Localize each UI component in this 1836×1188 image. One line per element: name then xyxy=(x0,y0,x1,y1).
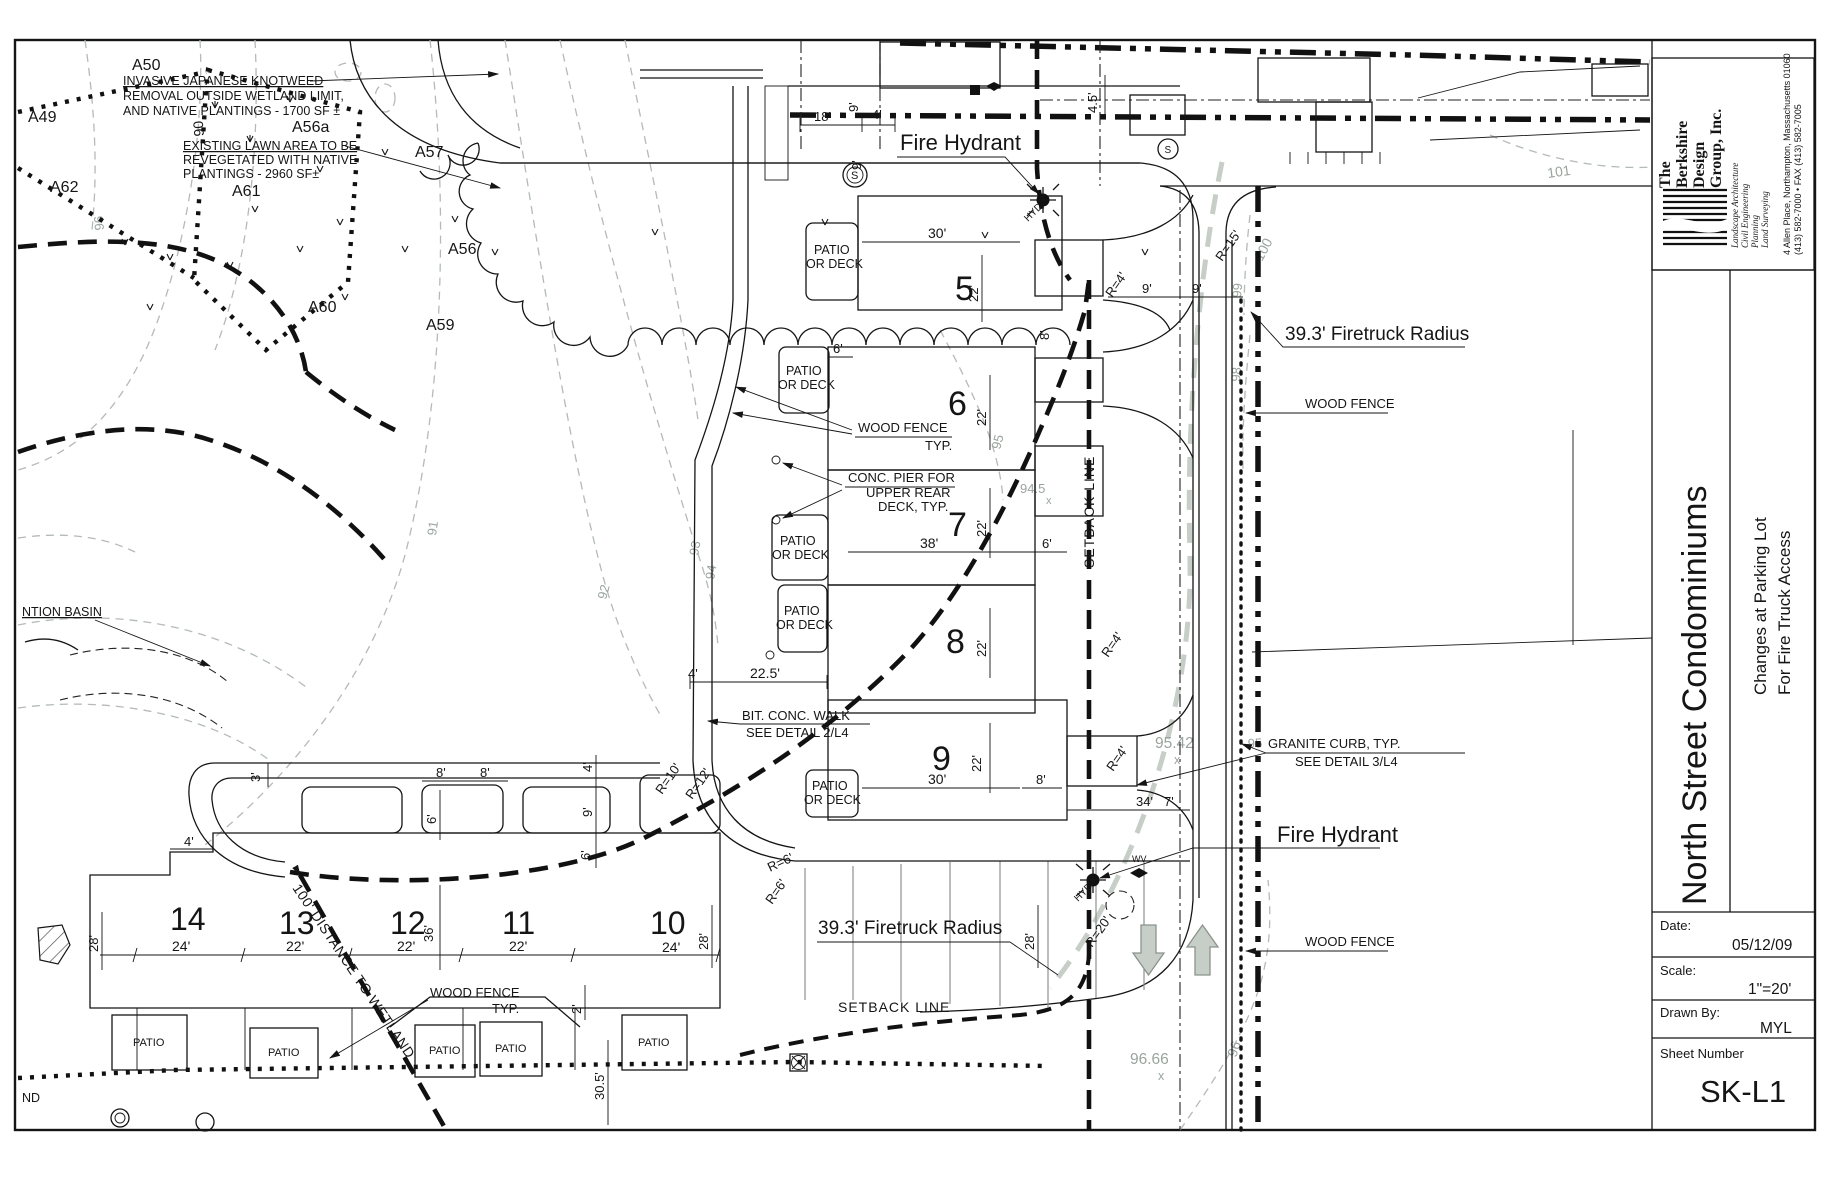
patio-deck-6b: OR DECK xyxy=(778,378,836,392)
dim-3: 3' xyxy=(248,772,263,782)
pt-a49: A49 xyxy=(28,109,57,126)
unit-numbers: 5 6 7 8 9 10 11 12 13 14 xyxy=(170,270,974,941)
dim-45: 4.5' xyxy=(1085,92,1100,113)
firm-addr-2: (413) 582-7000 • FAX (413) 582-7005 xyxy=(1793,104,1803,255)
contour-101: 101 xyxy=(1546,162,1572,181)
dim-4c: 4' xyxy=(184,834,194,849)
note-knotweed-3: AND NATIVE PLANTINGS - 1700 SF ± xyxy=(123,104,340,118)
title-block: The Berkshire Design Group, Inc. Landsca… xyxy=(1652,53,1814,1109)
dim-22d: 22' xyxy=(974,640,989,657)
tree-lines xyxy=(420,143,1070,356)
dim-38: 38' xyxy=(920,535,938,551)
label-firetruck-radius-bottom: 39.3' Firetruck Radius xyxy=(818,918,1002,939)
label-wood-fence-right-bottom: WOOD FENCE xyxy=(1305,934,1395,949)
dim-225: 22.5' xyxy=(750,665,780,681)
manhole2-s-label: S xyxy=(1165,145,1172,156)
unit-7: 7 xyxy=(948,506,967,544)
dim-7: 7' xyxy=(1164,794,1174,809)
contour-91: 91 xyxy=(424,520,441,536)
note-lawn-1: EXISTING LAWN AREA TO BE xyxy=(183,139,357,153)
dim-18: 18' xyxy=(814,109,831,124)
patio-deck-8a: PATIO xyxy=(784,604,820,618)
project-title: North Street Condominiums xyxy=(1676,485,1714,905)
dim-6d: 6' xyxy=(578,850,593,860)
drawn-by-label: Drawn By: xyxy=(1660,1005,1720,1020)
label-bit-walk-2: SEE DETAIL 2/L4 xyxy=(746,725,849,740)
patio-labels: PATIO OR DECK PATIO OR DECK PATIO OR DEC… xyxy=(133,243,864,1059)
label-firetruck-radius-top: 39.3' Firetruck Radius xyxy=(1285,324,1469,345)
spot-elev-9542: 95.42 xyxy=(1155,735,1194,752)
label-granite-2: SEE DETAIL 3/L4 xyxy=(1295,754,1398,769)
sheet-number-value: SK-L1 xyxy=(1700,1074,1786,1109)
note-lawn-3: PLANTINGS - 2960 SF± xyxy=(183,167,319,181)
firm-name-2: Berkshire xyxy=(1674,121,1691,188)
contour-92: 92 xyxy=(594,583,612,601)
label-setback-bottom: SETBACK LINE xyxy=(838,999,950,1015)
dim-28c: 28' xyxy=(1022,933,1037,950)
dim-9d: 9' xyxy=(1192,281,1202,296)
dimension-text: 18' 4' 9' 9' 4.5' 30' 22' 6' 22' 38' 22'… xyxy=(86,92,1244,1100)
firm-svc-3: Planning xyxy=(1750,215,1760,249)
pt-a59: A59 xyxy=(426,317,455,334)
catch-basin-icon xyxy=(790,1054,807,1071)
firm-svc-4: Land Surveying xyxy=(1760,191,1770,249)
patio-deck-6a: PATIO xyxy=(786,364,822,378)
dim-6a: 6' xyxy=(833,341,843,356)
scale-label: Scale: xyxy=(1660,963,1696,978)
scale-value: 1"=20' xyxy=(1748,981,1791,998)
dim-6c: 6' xyxy=(424,814,439,824)
dim-r4c: R=4' xyxy=(1103,743,1131,773)
dim-24b: 24' xyxy=(662,939,680,955)
label-wood-fence-right-top: WOOD FENCE xyxy=(1305,396,1395,411)
dim-30a: 30' xyxy=(928,225,946,241)
pt-a60: A60 xyxy=(308,299,337,316)
label-fire-hydrant-bottom: Fire Hydrant xyxy=(1277,822,1398,847)
label-conc-pier-3: DECK, TYP. xyxy=(878,499,948,514)
note-knotweed-1: INVASIVE JAPANESE KNOTWEED xyxy=(123,74,323,88)
patio-deck-5b: OR DECK xyxy=(806,257,864,271)
contour-96: 96 xyxy=(91,215,107,231)
patio-14: PATIO xyxy=(133,1037,165,1049)
dim-9a: 9' xyxy=(846,102,861,112)
pt-a61: A61 xyxy=(232,183,261,200)
pt-a56a: A56a xyxy=(292,119,329,136)
sheet-title-1: Changes at Parking Lot xyxy=(1751,517,1770,695)
dim-8a: 8' xyxy=(1036,772,1046,787)
dim-r6a: R=6' xyxy=(765,850,796,875)
dim-22e: 22' xyxy=(969,755,984,772)
pt-a62: A62 xyxy=(50,179,79,196)
firm-svc-2: Civil Engineering xyxy=(1740,183,1750,248)
plant-symbols xyxy=(122,96,1148,310)
dim-8c: 8' xyxy=(436,765,446,780)
unit-9: 9 xyxy=(932,740,951,778)
firm-name-4: Group, Inc. xyxy=(1708,109,1725,188)
pt-a50: A50 xyxy=(132,57,161,74)
patio-11: PATIO xyxy=(495,1043,527,1055)
patio-deck-7a: PATIO xyxy=(780,534,816,548)
label-basin: NTION BASIN xyxy=(22,605,102,619)
sheet-number-label: Sheet Number xyxy=(1660,1046,1744,1061)
date-value: 05/12/09 xyxy=(1732,937,1792,954)
wv-label: WV xyxy=(1132,854,1147,864)
dim-r15: R=15' xyxy=(1212,227,1244,263)
sheet-title-2: For Fire Truck Access xyxy=(1775,531,1794,695)
sewer-manhole2-icon: S xyxy=(1158,139,1178,159)
dim-8b: 8' xyxy=(1037,330,1052,340)
patio-deck-7b: OR DECK xyxy=(772,548,830,562)
label-wood-fence-typ: WOOD FENCE xyxy=(858,420,948,435)
dim-r6b: R=6' xyxy=(762,876,790,906)
spot-elev-x3: x xyxy=(1158,1069,1165,1083)
label-wood-fence-bottom2: TYP. xyxy=(492,1001,519,1016)
dim-9b: 9' xyxy=(849,160,864,170)
pt-a56: A56 xyxy=(448,241,477,258)
dim-28b: 28' xyxy=(696,933,711,950)
unit-6: 6 xyxy=(948,385,967,423)
dim-24a: 24' xyxy=(172,938,190,954)
unit-8: 8 xyxy=(946,623,965,661)
spot-elev-945: 94.5 xyxy=(1020,481,1045,496)
unit-12: 12 xyxy=(390,905,426,941)
dim-28a: 28' xyxy=(86,935,101,952)
site-plan-drawing: 90 91 92 93 94 95 96 98 99 100 101 95 96… xyxy=(0,0,1836,1188)
patio-10: PATIO xyxy=(638,1037,670,1049)
dim-r12: R=12' xyxy=(682,765,714,801)
unit-10: 10 xyxy=(650,905,686,941)
label-fire-hydrant-top: Fire Hydrant xyxy=(900,130,1021,155)
dim-4b: 4' xyxy=(688,666,698,681)
spot-elev-x2: x xyxy=(1046,495,1052,507)
unit-14: 14 xyxy=(170,901,206,937)
label-bit-walk-1: BIT. CONC. WALK xyxy=(742,708,850,723)
dim-8d: 8' xyxy=(480,765,490,780)
flow-arrows xyxy=(1133,925,1218,975)
dim-4d: 4' xyxy=(580,762,595,772)
fire-hydrant-top-icon: HYD xyxy=(1022,184,1059,224)
patio-deck-9b: OR DECK xyxy=(804,793,862,807)
dim-22c: 22' xyxy=(974,520,989,537)
firm-logo xyxy=(1663,190,1727,244)
note-knotweed-2: REMOVAL OUTSIDE WETLAND LIMIT, xyxy=(123,89,344,103)
firm-name-3: Design xyxy=(1691,142,1708,188)
label-granite-1: GRANITE CURB, TYP. xyxy=(1268,736,1400,751)
contour-95: 95 xyxy=(988,433,1006,451)
dim-9e: 9' xyxy=(580,807,595,817)
dim-6b: 6' xyxy=(1042,536,1052,551)
spot-elev-9666: 96.66 xyxy=(1130,1051,1169,1068)
drawn-by-value: MYL xyxy=(1760,1020,1792,1037)
patio-13: PATIO xyxy=(268,1047,300,1059)
dimension-lines xyxy=(100,75,1243,1125)
label-wood-fence-typ2: TYP. xyxy=(925,438,952,453)
dim-22b: 22' xyxy=(974,409,989,426)
patio-deck-9a: PATIO xyxy=(812,779,848,793)
pt-a57: A57 xyxy=(415,144,444,161)
dim-r4b: R=4' xyxy=(1098,629,1126,659)
dim-4a: 4' xyxy=(872,107,882,122)
label-wood-fence-bottom: WOOD FENCE xyxy=(430,985,520,1000)
callouts: INVASIVE JAPANESE KNOTWEED REMOVAL OUTSI… xyxy=(22,74,1469,1105)
manhole-s-label: S xyxy=(851,170,858,182)
patio-12: PATIO xyxy=(429,1045,461,1057)
dim-2: 2' xyxy=(569,1004,584,1014)
label-setback-vertical: SETBACK LINE xyxy=(1081,456,1097,568)
patio-deck-8b: OR DECK xyxy=(776,618,834,632)
unit-5: 5 xyxy=(955,270,974,308)
firm-svc-1: Landscape Architecture xyxy=(1730,163,1740,249)
dim-9c: 9' xyxy=(1142,281,1152,296)
contour-94: 94 xyxy=(702,564,719,581)
firm-name-1: The xyxy=(1657,161,1674,188)
label-nd: ND xyxy=(22,1091,40,1105)
note-lawn-2: REVEGETATED WITH NATIVE xyxy=(183,153,357,167)
fire-hydrant-bottom-icon: HYD WV xyxy=(1072,854,1148,919)
contour-100: 100 xyxy=(1251,235,1276,263)
plan-sheet: 90 91 92 93 94 95 96 98 99 100 101 95 96… xyxy=(0,0,1836,1188)
unit-11: 11 xyxy=(502,905,535,941)
dim-305: 30.5' xyxy=(592,1072,607,1100)
dim-34: 34' xyxy=(1136,794,1153,809)
label-conc-pier-1: CONC. PIER FOR xyxy=(848,470,955,485)
patio-deck-5a: PATIO xyxy=(814,243,850,257)
date-label: Date: xyxy=(1660,918,1691,933)
dim-r4a: R=4' xyxy=(1102,269,1130,299)
firm-addr-1: 4 Allen Place, Northampton, Massachusett… xyxy=(1782,53,1792,255)
